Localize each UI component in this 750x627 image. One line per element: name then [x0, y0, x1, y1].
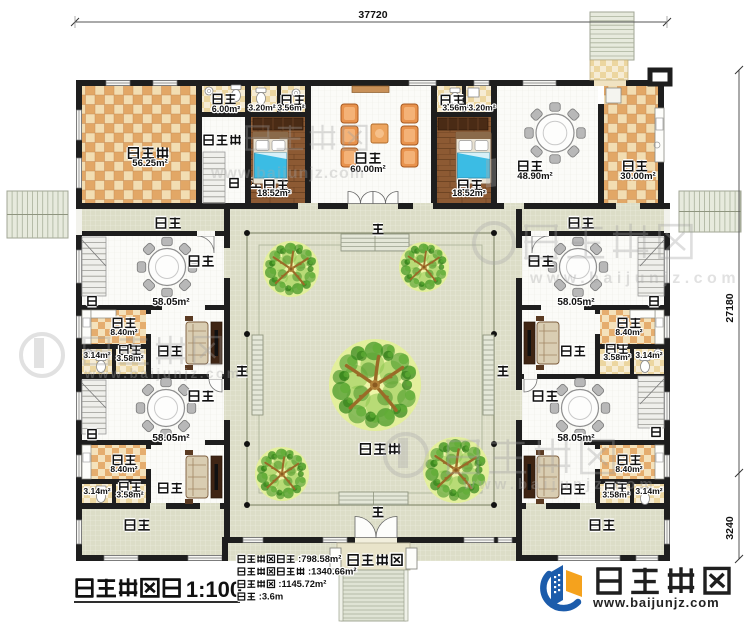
svg-text::1340.66m²: :1340.66m² [308, 566, 356, 577]
svg-text:3.56m²: 3.56m² [277, 103, 304, 113]
svg-text::798.58m²: :798.58m² [298, 553, 341, 564]
svg-text:3.14m²: 3.14m² [635, 350, 662, 360]
svg-text:6.00m²: 6.00m² [212, 104, 241, 114]
svg-text:8.40m²: 8.40m² [110, 464, 137, 474]
svg-text:58.05m²: 58.05m² [152, 297, 190, 308]
svg-text:www.baijunjz.com: www.baijunjz.com [462, 476, 656, 493]
svg-text::3.6m: :3.6m [259, 591, 284, 602]
svg-text:8.40m²: 8.40m² [615, 464, 642, 474]
svg-text:58.05m²: 58.05m² [557, 433, 595, 444]
svg-text:www.baijunjz.com: www.baijunjz.com [592, 595, 720, 610]
svg-text:www.baijunjz.com: www.baijunjz.com [529, 270, 740, 287]
svg-text:1:100: 1:100 [186, 577, 242, 602]
svg-text:8.40m²: 8.40m² [110, 327, 137, 337]
svg-text:30.00m²: 30.00m² [620, 171, 655, 182]
svg-text:18.52m²: 18.52m² [257, 188, 291, 198]
svg-text:www.baijunjz.com: www.baijunjz.com [84, 366, 242, 381]
svg-text:8.40m²: 8.40m² [615, 327, 642, 337]
svg-text:3.20m²: 3.20m² [468, 103, 495, 113]
svg-text:37720: 37720 [358, 9, 387, 21]
svg-text::1145.72m²: :1145.72m² [278, 578, 326, 589]
svg-text:3240: 3240 [724, 516, 736, 540]
svg-text:18.52m²: 18.52m² [452, 188, 486, 198]
svg-text:27180: 27180 [724, 293, 736, 322]
svg-text:www.baijunjz.com: www.baijunjz.com [210, 165, 365, 182]
svg-text:3.58m²: 3.58m² [116, 353, 143, 363]
svg-text:3.58m²: 3.58m² [603, 352, 630, 362]
svg-text:3.14m²: 3.14m² [83, 486, 110, 496]
svg-text:58.05m²: 58.05m² [557, 297, 595, 308]
svg-text:3.56m²: 3.56m² [442, 103, 469, 113]
svg-text:48.90m²: 48.90m² [517, 171, 552, 182]
svg-text:58.05m²: 58.05m² [152, 433, 190, 444]
svg-text:3.58m²: 3.58m² [116, 490, 143, 500]
svg-text:56.25m²: 56.25m² [132, 158, 167, 169]
svg-text:3.20m²: 3.20m² [248, 103, 275, 113]
